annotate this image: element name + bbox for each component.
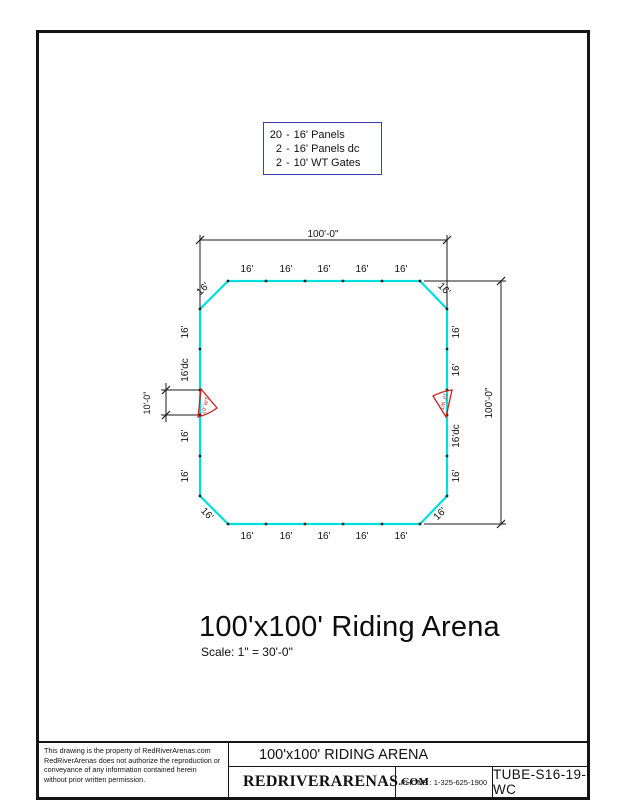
company-name-main: REDRIVERARENAS bbox=[243, 773, 398, 791]
panel-label: 16' bbox=[180, 469, 191, 482]
panel-label: 16' bbox=[279, 531, 292, 542]
panel-label: 16' bbox=[195, 281, 212, 298]
panel-label: 16' bbox=[451, 325, 462, 338]
dimension-top-label: 100'-0" bbox=[307, 229, 338, 240]
panel-labels-corners: 16' 16' 16' 16' bbox=[195, 281, 453, 523]
gate-symbol-right: 10' WT bbox=[433, 390, 452, 417]
dimension-gate-opening: 10'-0" bbox=[142, 383, 199, 422]
company-name: REDRIVERARENAS.COM bbox=[229, 767, 395, 797]
panel-label: 16' bbox=[355, 531, 368, 542]
panel-label: 16' bbox=[180, 429, 191, 442]
title-block-right: 100'x100' RIDING ARENA REDRIVERARENAS.CO… bbox=[229, 743, 587, 797]
title-block-bottom-row: REDRIVERARENAS.COM PHONE : 1-325-625-190… bbox=[229, 767, 587, 797]
panel-label: 16' bbox=[240, 264, 253, 275]
disclaimer-line: without prior written permission. bbox=[44, 775, 223, 785]
panel-joint-dots bbox=[199, 280, 449, 526]
panel-labels-left: 16' 16'dc 16' 16' bbox=[180, 325, 191, 482]
drawing-page: 20 - 16' Panels 2 - 16' Panels dc 2 - 10… bbox=[0, 0, 624, 808]
disclaimer-line: This drawing is the property of RedRiver… bbox=[44, 746, 223, 756]
panel-dc-label: 16'dc bbox=[451, 424, 462, 448]
panel-dc-label: 16'dc bbox=[180, 358, 191, 382]
drawing-title: 100'x100' Riding Arena bbox=[199, 611, 500, 644]
panel-label: 16' bbox=[394, 531, 407, 542]
panel-label: 16' bbox=[279, 264, 292, 275]
dimension-gate-label: 10'-0" bbox=[142, 392, 152, 415]
panel-labels-right: 16' 16' 16'dc 16' bbox=[451, 325, 462, 482]
panel-label: 16' bbox=[451, 363, 462, 376]
panel-label: 16' bbox=[355, 264, 368, 275]
disclaimer-text: This drawing is the property of RedRiver… bbox=[39, 743, 229, 797]
panel-label: 16' bbox=[435, 281, 452, 298]
drawing-number: TUBE-S16-19-WC bbox=[492, 767, 587, 797]
disclaimer-line: RedRiverArenas does not authorize the re… bbox=[44, 756, 223, 766]
company-phone: PHONE : 1-325-625-1900 bbox=[395, 767, 492, 797]
scale-note: Scale: 1" = 30'-0" bbox=[201, 645, 293, 659]
panel-label: 16' bbox=[451, 469, 462, 482]
dimension-right-label: 100'-0" bbox=[484, 387, 495, 418]
panel-label: 16' bbox=[180, 325, 191, 338]
panel-label: 16' bbox=[240, 531, 253, 542]
arena-plan-drawing: 100'-0" 100'-0" 10'-0" 16' 16' 16' 16' 1 bbox=[0, 0, 624, 808]
panel-labels-bottom: 16' 16' 16' 16' 16' bbox=[240, 531, 407, 542]
panel-label: 16' bbox=[394, 264, 407, 275]
title-block-drawing-title: 100'x100' RIDING ARENA bbox=[229, 743, 587, 767]
title-block: This drawing is the property of RedRiver… bbox=[39, 741, 587, 797]
panel-labels-top: 16' 16' 16' 16' 16' bbox=[240, 264, 407, 275]
panel-label: 16' bbox=[317, 264, 330, 275]
panel-label: 16' bbox=[317, 531, 330, 542]
disclaimer-line: conveyance of any information contained … bbox=[44, 765, 223, 775]
arena-fence-outline bbox=[200, 281, 447, 524]
